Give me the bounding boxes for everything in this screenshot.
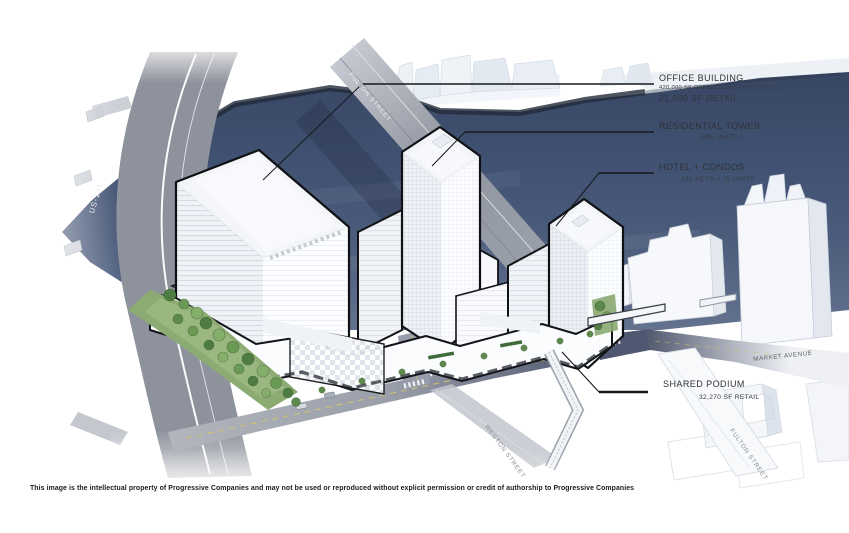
label-detail: 21,000 SF RETAIL — [659, 94, 779, 103]
label-title: RESIDENTIAL TOWER — [659, 122, 761, 131]
copyright-notice: This image is the intellectual property … — [30, 485, 634, 492]
shared-podium-label: SHARED PODIUM 32,270 SF RETAIL — [663, 380, 759, 402]
label-detail: 130 KEYS + 76 UNITS — [681, 177, 755, 184]
label-title: OFFICE BUILDING — [659, 74, 779, 83]
label-detail: 32,270 SF RETAIL — [699, 395, 759, 402]
site-plan-illustration: OFFICE BUILDING 420,000 SF OFFICE [1,600… — [0, 0, 849, 533]
hotel-condos-label: HOTEL + CONDOS 130 KEYS + 76 UNITS — [659, 163, 755, 184]
label-detail: 420,000 SF OFFICE [1,600 EMPLOYEES] — [659, 86, 779, 92]
office-building-label: OFFICE BUILDING 420,000 SF OFFICE [1,600… — [659, 74, 779, 102]
residential-tower-label: RESIDENTIAL TOWER 595 UNITS — [659, 122, 761, 142]
label-title: HOTEL + CONDOS — [659, 163, 755, 172]
label-title: SHARED PODIUM — [663, 380, 759, 389]
label-detail: 595 UNITS — [702, 135, 761, 142]
